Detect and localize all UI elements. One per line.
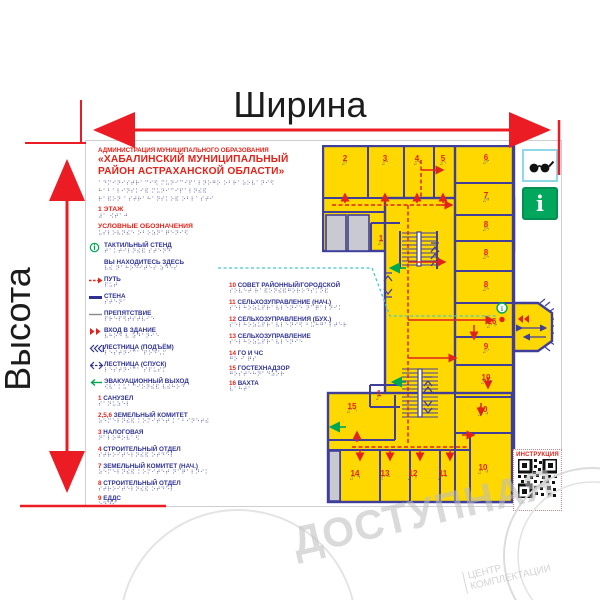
braille-line: ⠧⠮ ⠝⠁⠓⠕⠙⠊⠞⠑⠎ ⠵⠙⠑⠎: [104, 266, 184, 272]
braille-line: ⠗⠁⠯⠕⠝ ⠁⠎⠞⠗⠁⠓⠁⠝⠎⠅⠕⠯ ⠕⠃⠇⠁⠎⠞⠊: [98, 197, 214, 203]
instruction-qr-block: ИНСТРУКЦИЯ: [513, 449, 562, 511]
entrance-icon: [89, 327, 104, 336]
braille-line: ⠎⠑⠇⠓⠕⠵⠥⠏⠗⠁⠧⠇⠑⠝⠊⠑: [229, 340, 311, 346]
braille-line: ⠵⠑⠍⠑⠇⠝⠮⠯ ⠅⠕⠍⠊⠞⠑⠞ ⠅⠁⠃⠊⠝⠑⠞⠮: [98, 419, 209, 425]
staircase-upper: [402, 232, 436, 266]
stairs-down-icon: [89, 361, 104, 370]
braille-line: ⠑⠙⠙⠎: [98, 502, 121, 508]
braille-line: ⠓⠁⠃⠁⠇⠊⠝⠎⠅⠊⠯ ⠍⠥⠝⠊⠉⠊⠏⠁⠇⠝⠮⠯: [98, 189, 207, 195]
info-icon: i: [536, 191, 544, 216]
org-title-line3: РАЙОН АСТРАХАНСКОЙ ОБЛАСТИ»: [98, 166, 285, 178]
legend-label: СТЕНА: [104, 293, 127, 300]
room-entry: 13 СЕЛЬХОЗУПРАВЛЕНИЕ ⠎⠑⠇⠓⠕⠵⠥⠏⠗⠁⠧⠇⠑⠝⠊⠑: [229, 333, 311, 346]
legend-item: ЛЕСТНИЦА (ПОДЪЁМ) ⠇⠑⠎⠞⠝⠊⠉⠁ ⠏⠕⠙⠡⠍: [89, 344, 174, 357]
qr-label: ИНСТРУКЦИЯ: [514, 452, 561, 458]
legend-label: ЭВАКУАЦИОННЫЙ ВЫХОД: [104, 378, 189, 385]
wall-icon: [89, 293, 104, 302]
braille-line: ⠎⠞⠗⠕⠊⠞⠑⠇⠝⠮⠯ ⠕⠞⠙⠑⠇: [98, 453, 181, 459]
room-entry: 2,5,6 ЗЕМЕЛЬНЫЙ КОМИТЕТ ⠵⠑⠍⠑⠇⠝⠮⠯ ⠅⠕⠍⠊⠞⠑⠞…: [98, 412, 209, 425]
braille-line: ⠞⠁⠅⠞⠊⠇⠝⠮⠯ ⠎⠞⠑⠝⠙: [104, 249, 172, 255]
info-pictogram: i: [522, 187, 558, 220]
legend-label: ВХОД В ЗДАНИЕ: [104, 327, 160, 334]
room-entry: 16 ВАХТА ⠧⠁⠓⠞⠁: [229, 380, 259, 393]
obstacle-icon: [89, 310, 104, 319]
floor-label: 1 ЭТАЖ: [98, 206, 123, 213]
watermark-line: ЦЕНТР: [467, 552, 550, 581]
legend-item: ПУТЬ ⠏⠥⠞: [89, 276, 121, 289]
glasses-icon: [526, 157, 554, 175]
braille-line: ⠧⠓⠕⠙ ⠧ ⠵⠙⠁⠝⠊⠑: [104, 334, 160, 340]
braille-line: ⠥⠎⠇⠕⠧⠝⠮⠑ ⠕⠃⠕⠵⠝⠁⠟⠑⠝⠊⠫: [98, 231, 189, 237]
room-entry: 14 ГО И ЧС ⠛⠕ ⠊ ⠟⠎: [229, 350, 263, 363]
braille-line: ⠎⠞⠑⠝⠁: [104, 300, 127, 306]
legend-item: ЛЕСТНИЦА (СПУСК) ⠇⠑⠎⠞⠝⠊⠉⠁ ⠎⠏⠥⠎⠅: [89, 361, 167, 374]
path-icon: [89, 276, 104, 285]
legend-item: ВЫ НАХОДИТЕСЬ ЗДЕСЬ ⠧⠮ ⠝⠁⠓⠕⠙⠊⠞⠑⠎ ⠵⠙⠑⠎: [89, 259, 184, 272]
svg-text:i: i: [501, 305, 503, 313]
braille-line: ⠏⠗⠑⠏⠫⠞⠎⠞⠧⠊⠑: [104, 317, 155, 323]
room-entry: 15 ГОСТЕХНАДЗОР ⠛⠕⠎⠞⠑⠓⠝⠁⠙⠵⠕⠗: [229, 365, 290, 378]
watermark-line: КОМПЛЕКТАЦИИ: [469, 563, 552, 592]
braille-line: ⠧⠁⠓⠞⠁: [229, 387, 259, 393]
braille-line: ⠎⠁⠝⠥⠵⠑⠇: [98, 402, 133, 408]
braille-line: ⠼⠁ ⠪⠞⠁⠚: [98, 214, 128, 220]
braille-line: ⠇⠑⠎⠞⠝⠊⠉⠁ ⠎⠏⠥⠎⠅: [104, 368, 167, 374]
room-entry: 3 НАЛОГОВАЯ ⠝⠁⠇⠕⠛⠕⠧⠁⠫: [98, 429, 143, 442]
legend-item: ВХОД В ЗДАНИЕ ⠧⠓⠕⠙ ⠧ ⠵⠙⠁⠝⠊⠑: [89, 327, 160, 340]
braille-line: ⠁⠙⠍⠊⠝⠊⠎⠞⠗⠁⠉⠊⠫ ⠍⠥⠝⠊⠉⠊⠏⠁⠇⠝⠕⠛⠕ ⠕⠃⠗⠁⠵⠕⠧⠁⠝⠊⠫: [98, 181, 274, 187]
braille-line: ⠪⠧⠁⠅⠥⠁⠉⠊⠕⠝⠮⠯ ⠧⠮⠓⠕⠙: [104, 385, 189, 391]
low-vision-pictogram: [522, 149, 558, 182]
org-title-line2: «ХАБАЛИНСКИЙ МУНИЦИПАЛЬНЫЙ: [98, 154, 289, 166]
braille-line: ⠵⠑⠍⠑⠇⠝⠮⠯ ⠅⠕⠍⠊⠞⠑⠞ ⠝⠁⠟⠁⠇⠝⠊⠅: [98, 470, 209, 476]
braille-line: ⠎⠞⠗⠕⠊⠞⠑⠇⠝⠮⠯ ⠕⠞⠙⠑⠇: [98, 487, 181, 493]
legend-label: ПРЕПЯТСТВИЕ: [104, 310, 155, 317]
width-dimension-label: Ширина: [0, 84, 600, 126]
exit-icon: [89, 378, 104, 387]
entrance-vestibule: [514, 303, 552, 351]
legend-title: УСЛОВНЫЕ ОБОЗНАЧЕНИЯ: [98, 223, 193, 230]
legend-label: ЛЕСТНИЦА (СПУСК): [104, 361, 167, 368]
org-title-line1: АДМИНИСТРАЦИЯ МУНИЦИПАЛЬНОГО ОБРАЗОВАНИЯ: [98, 147, 269, 154]
braille-line: ⠇⠑⠎⠞⠝⠊⠉⠁ ⠏⠕⠙⠡⠍: [104, 351, 174, 357]
legend-item: ТАКТИЛЬНЫЙ СТЕНД ⠞⠁⠅⠞⠊⠇⠝⠮⠯ ⠎⠞⠑⠝⠙: [89, 242, 172, 255]
legend-item: СТЕНА ⠎⠞⠑⠝⠁: [89, 293, 127, 306]
height-dimension-label: Высота: [0, 179, 39, 479]
legend-label: ТАКТИЛЬНЫЙ СТЕНД: [104, 242, 172, 249]
room-entry: 7 ЗЕМЕЛЬНЫЙ КОМИТЕТ (НАЧ.) ⠵⠑⠍⠑⠇⠝⠮⠯ ⠅⠕⠍⠊…: [98, 463, 209, 476]
room-entry: 1 САНУЗЕЛ ⠎⠁⠝⠥⠵⠑⠇: [98, 395, 133, 408]
legend-label: ЛЕСТНИЦА (ПОДЪЁМ): [104, 344, 174, 351]
tactile-sign-screenshot: Ширина Высота АДМИНИСТРАЦИЯ МУНИЦИПАЛЬНО…: [0, 0, 600, 600]
legend-label: ПУТЬ: [104, 276, 121, 283]
room-entry: 4 СТРОИТЕЛЬНЫЙ ОТДЕЛ ⠎⠞⠗⠕⠊⠞⠑⠇⠝⠮⠯ ⠕⠞⠙⠑⠇: [98, 446, 181, 459]
braille-line: ⠏⠥⠞: [104, 283, 121, 289]
info-circle-icon: [89, 242, 104, 253]
room-entry: 8 СТРОИТЕЛЬНЫЙ ОТДЕЛ ⠎⠞⠗⠕⠊⠞⠑⠇⠝⠮⠯ ⠕⠞⠙⠑⠇: [98, 480, 181, 493]
room-entry: 9 ЕДДС ⠑⠙⠙⠎: [98, 495, 121, 508]
qr-code: [518, 459, 557, 498]
watermark-subtext: ЦЕНТР КОМПЛЕКТАЦИИ: [462, 552, 552, 593]
stairs-up-icon: [89, 344, 104, 353]
braille-line: ⠛⠕ ⠊ ⠟⠎: [229, 357, 263, 363]
legend-item: ПРЕПЯТСТВИЕ ⠏⠗⠑⠏⠫⠞⠎⠞⠧⠊⠑: [89, 310, 155, 323]
braille-line: ⠛⠕⠎⠞⠑⠓⠝⠁⠙⠵⠕⠗: [229, 372, 290, 378]
braille-line: ⠝⠁⠇⠕⠛⠕⠧⠁⠫: [98, 436, 143, 442]
legend-item: ЭВАКУАЦИОННЫЙ ВЫХОД ⠪⠧⠁⠅⠥⠁⠉⠊⠕⠝⠮⠯ ⠧⠮⠓⠕⠙: [89, 378, 189, 391]
legend-label: ВЫ НАХОДИТЕСЬ ЗДЕСЬ: [104, 259, 184, 266]
